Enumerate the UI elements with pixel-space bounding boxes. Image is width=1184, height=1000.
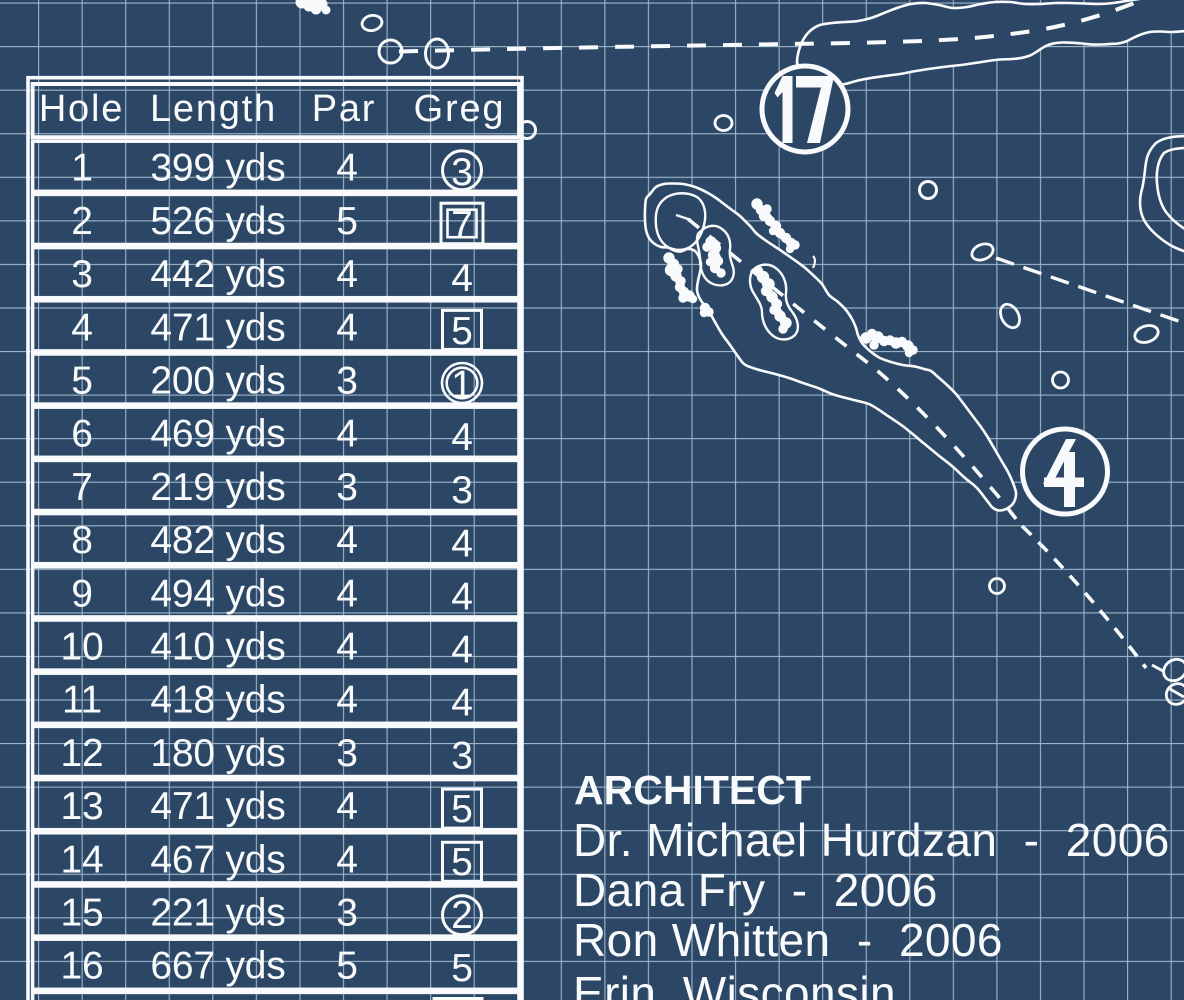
svg-text:3: 3	[336, 360, 358, 403]
svg-text:3: 3	[336, 732, 358, 775]
svg-text:4: 4	[451, 257, 473, 300]
svg-text:11: 11	[62, 679, 102, 722]
svg-text:4: 4	[451, 416, 473, 459]
svg-text:5: 5	[451, 788, 473, 831]
svg-text:Dr. Michael Hurdzan - 2006: Dr. Michael Hurdzan - 2006	[573, 814, 1170, 866]
svg-text:469 yds: 469 yds	[150, 413, 285, 456]
svg-text:Par: Par	[312, 88, 377, 130]
svg-text:467 yds: 467 yds	[150, 838, 285, 881]
svg-text:12: 12	[61, 732, 104, 775]
svg-text:667 yds: 667 yds	[150, 945, 285, 988]
svg-text:219 yds: 219 yds	[150, 466, 285, 509]
svg-text:5: 5	[451, 841, 473, 884]
svg-text:5: 5	[336, 945, 358, 988]
svg-text:526 yds: 526 yds	[150, 200, 285, 243]
svg-text:14: 14	[61, 838, 104, 881]
svg-text:418 yds: 418 yds	[150, 679, 285, 722]
svg-text:4: 4	[336, 147, 358, 190]
svg-text:7: 7	[71, 466, 93, 509]
svg-text:482 yds: 482 yds	[150, 519, 285, 562]
svg-text:4: 4	[336, 306, 358, 349]
svg-text:9: 9	[71, 572, 93, 615]
svg-text:5: 5	[71, 360, 93, 403]
svg-text:4: 4	[451, 575, 473, 618]
svg-text:5: 5	[336, 200, 358, 243]
svg-text:5: 5	[451, 310, 473, 353]
svg-text:471 yds: 471 yds	[150, 785, 285, 828]
svg-text:7: 7	[451, 204, 473, 247]
svg-text:1: 1	[71, 147, 93, 190]
svg-text:200 yds: 200 yds	[150, 360, 285, 403]
svg-text:4: 4	[336, 626, 358, 669]
svg-text:3: 3	[451, 735, 473, 778]
svg-text:Ron Whitten - 2006: Ron Whitten - 2006	[573, 914, 1003, 966]
svg-text:4: 4	[451, 682, 473, 725]
svg-text:4: 4	[336, 572, 358, 615]
svg-text:Hole: Hole	[39, 88, 124, 130]
svg-text:Length: Length	[150, 88, 277, 130]
svg-text:494 yds: 494 yds	[150, 572, 285, 615]
svg-text:16: 16	[61, 945, 104, 988]
svg-text:4: 4	[336, 413, 358, 456]
svg-text:15: 15	[61, 892, 104, 935]
svg-text:5: 5	[451, 947, 473, 990]
svg-text:4: 4	[71, 306, 93, 349]
svg-text:2: 2	[71, 200, 93, 243]
svg-text:Dana Fry - 2006: Dana Fry - 2006	[573, 864, 938, 916]
svg-text:4: 4	[336, 838, 358, 881]
svg-text:4: 4	[336, 785, 358, 828]
svg-text:471 yds: 471 yds	[150, 306, 285, 349]
svg-text:1: 1	[451, 364, 473, 407]
svg-text:4: 4	[336, 519, 358, 562]
svg-text:4: 4	[451, 522, 473, 565]
svg-text:3: 3	[336, 892, 358, 935]
svg-text:8: 8	[71, 519, 93, 562]
svg-text:442 yds: 442 yds	[150, 253, 285, 296]
svg-text:410 yds: 410 yds	[150, 626, 285, 669]
svg-text:ARCHITECT: ARCHITECT	[574, 767, 811, 813]
svg-text:6: 6	[71, 413, 93, 456]
svg-text:13: 13	[61, 785, 104, 828]
svg-text:221 yds: 221 yds	[150, 892, 285, 935]
svg-text:4: 4	[336, 679, 358, 722]
svg-text:180 yds: 180 yds	[150, 732, 285, 775]
svg-text:3: 3	[71, 253, 93, 296]
svg-text:4: 4	[336, 253, 358, 296]
svg-text:Erin, Wisconsin: Erin, Wisconsin	[573, 967, 896, 1000]
svg-text:3: 3	[451, 469, 473, 512]
svg-text:10: 10	[61, 626, 104, 669]
svg-text:4: 4	[451, 629, 473, 672]
svg-text:3: 3	[451, 151, 473, 194]
svg-text:3: 3	[336, 466, 358, 509]
svg-text:Greg: Greg	[414, 88, 506, 130]
svg-text:2: 2	[451, 894, 473, 937]
svg-text:399 yds: 399 yds	[150, 147, 285, 190]
